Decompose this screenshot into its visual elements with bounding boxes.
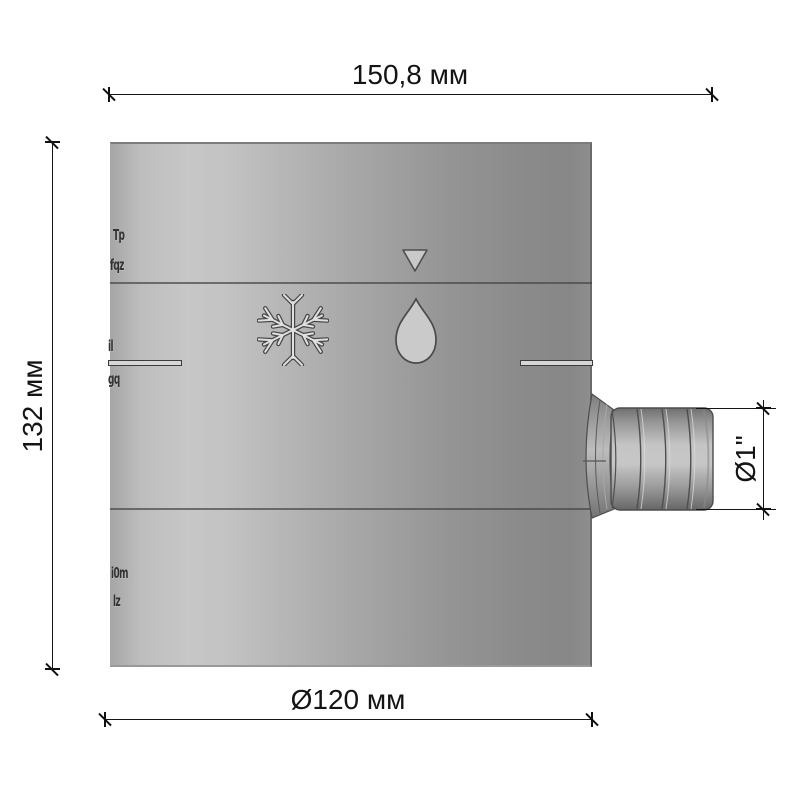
lower-seam-line (110, 508, 592, 510)
height-dimension-label: 132 мм (18, 306, 48, 506)
embossed-mark: Tp (113, 228, 124, 243)
outlet-dimension-label: Ø1" (731, 399, 761, 519)
triangle-down-icon (398, 246, 432, 276)
product-body (110, 142, 592, 667)
embossed-mark: lz (113, 594, 120, 609)
left-overflow-slot (108, 360, 182, 366)
embossed-mark: il (108, 339, 113, 354)
outlet-dimension-line (763, 400, 764, 520)
water-drop-icon (393, 294, 441, 366)
hose-outlet-spout (575, 386, 725, 526)
right-overflow-slot (520, 360, 593, 366)
width-dimension-line (109, 94, 712, 95)
diameter-dimension-line (105, 719, 592, 720)
diameter-dimension-label: Ø120 мм (248, 685, 448, 715)
snowflake-icon (257, 294, 329, 366)
embossed-mark: gq (108, 372, 120, 387)
technical-drawing-canvas: Tp fqz il gq i0m lz (0, 0, 800, 800)
upper-seam-line (110, 282, 592, 284)
height-dimension-line (52, 142, 53, 669)
embossed-mark: i0m (111, 566, 128, 581)
width-dimension-label: 150,8 мм (310, 60, 510, 90)
embossed-mark: fqz (110, 258, 124, 273)
